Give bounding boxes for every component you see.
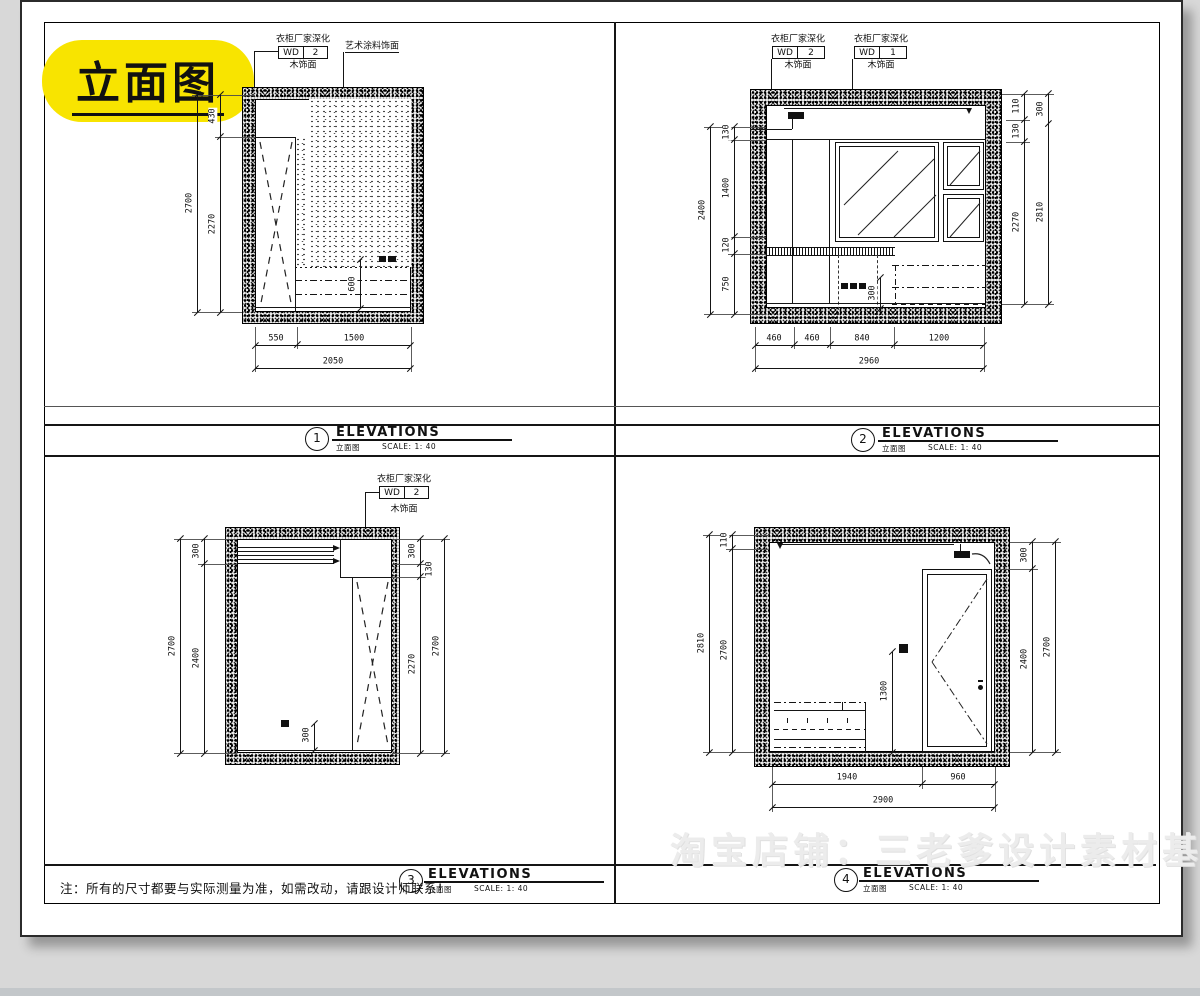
dim-label: 130 [1012,122,1021,139]
sheet-divider-horizontal [44,455,1160,457]
cabinet-line [295,267,411,268]
step-line [340,577,392,578]
leader-line [254,51,278,52]
dim-label: 1940 [836,773,858,782]
socket-icon [859,283,866,289]
titleblock-title: ELEVATIONS [882,426,986,441]
wardrobe-panel-line [829,139,830,303]
dim-line [255,368,411,369]
dim-label: 300 [1020,546,1029,563]
callout-wardrobe-title: 衣柜厂家深化 [771,32,825,45]
wall-lamp-icon [788,112,804,119]
dim-line [204,539,205,753]
step-line [340,539,341,577]
callout-num: 2 [405,487,428,498]
door-swing-dashes [923,570,993,753]
sheet-note: 注：所有的尺寸都要与实际测量为准，如需改动，请跟设计师联系！ [60,878,450,897]
glass-hatch [944,143,985,191]
dim-line [709,535,710,752]
dim-label: 840 [853,334,870,343]
callout-code: WD [279,47,304,58]
mirror-panel [835,142,939,242]
dim-label: 750 [722,275,731,292]
dim-line [220,95,221,312]
callout-wood: 木饰面 [289,58,316,71]
shoe-cabinet-line [774,702,865,703]
dim-line [1032,542,1033,752]
curtain-line [237,547,334,548]
shoe-cabinet-mark [787,718,788,723]
dim-label: 1300 [880,680,889,702]
callout-num: 1 [880,47,906,58]
ext-line [174,539,237,540]
wardrobe-edge [295,137,296,312]
dim-label: 1200 [928,334,950,343]
callout-wood: 木饰面 [867,58,894,71]
titleblock-underline [859,880,1039,882]
cabinet-line [295,294,411,295]
dim-label: 2700 [432,635,441,657]
dim-label: 460 [803,334,820,343]
callout-underline [345,52,399,53]
curtain-line [237,559,334,560]
dim-label: 300 [1036,100,1045,117]
floor-line [255,307,411,308]
shoe-cabinet-step [842,702,843,710]
socket-icon [281,720,289,727]
floor-line [766,303,986,304]
dim-label: 2700 [720,639,729,661]
desktop-background: 立面图 衣柜厂家深化 WD 2 木饰面 艺术涂料饰面 600 2700 430 … [0,0,1200,996]
badge-label: 立面图 [72,47,224,116]
dim-line [180,539,181,753]
ext-line [1006,142,1030,143]
wall-lamp-icon [954,551,970,558]
titleblock-sub: 立面图 [863,883,887,894]
titleblock-underline [878,440,1058,442]
dim-line [1055,542,1056,752]
sheet-line-1 [44,406,1160,407]
dim-label: 2270 [208,213,217,235]
callout-wardrobe-title: 衣柜厂家深化 [276,32,330,45]
dim-line [420,539,421,753]
door-panel [922,569,992,752]
titleblock-underline [424,881,604,883]
lamp-leader [781,544,954,545]
bottom-bar [0,988,1200,996]
dim-label: 430 [208,107,217,124]
elevation-badge: 立面图 [42,40,254,122]
dim-line [732,535,733,752]
titleblock-number: 2 [851,428,875,452]
titleblock-underline [332,439,512,441]
desk-line [892,287,986,288]
dim-line [710,127,711,314]
drawing-sheet: 立面图 衣柜厂家深化 WD 2 木饰面 艺术涂料饰面 600 2700 430 … [20,0,1183,937]
dim-label: 2900 [872,796,894,805]
lamp-leader [792,119,793,129]
wardrobe-panel-line [792,139,793,303]
shoe-cabinet-line [774,747,865,748]
callout-wood: 木饰面 [390,502,417,515]
titleblock-sub: 立面图 [882,443,906,454]
door-handle-icon [978,680,983,682]
glass-hatch [944,195,985,243]
curtain-arrow-icon [333,558,340,564]
dim-line [1024,94,1025,304]
shoe-cabinet-mark [827,718,828,723]
shoe-cabinet-edge [865,702,866,752]
dim-label: 1500 [343,334,365,343]
titleblock-title: ELEVATIONS [336,425,440,440]
socket-icon [850,283,857,289]
dim-label: 300 [868,284,877,301]
callout-code: WD [855,47,880,58]
dim-line [772,784,995,785]
art-paint-wall [309,99,411,267]
dim-line [1048,94,1049,304]
shoe-cabinet-mark [807,718,808,723]
dim-label: 300 [192,542,201,559]
glass-panel [943,194,984,242]
dim-label: 2960 [858,357,880,366]
desk-line [892,265,986,266]
dim-label: 2270 [408,653,417,675]
titleblock-scale: SCALE: 1: 40 [382,442,436,451]
shoe-cabinet-line [774,710,865,711]
dim-line [360,260,361,308]
callout-wardrobe-title: 衣柜厂家深化 [377,472,431,485]
ceiling-line [766,139,986,140]
sheet-line-2 [44,424,1160,426]
lamp-leader [784,108,971,109]
art-paint-wall [295,137,309,267]
switch-icon [899,644,908,653]
dim-line [755,345,984,346]
glass-hatch [836,143,940,243]
lamp-curve [970,546,992,566]
ext-line [215,137,255,138]
dim-line [772,807,995,808]
ext-line [703,535,769,536]
socket-icon [379,256,386,262]
callout-num: 2 [304,47,327,58]
shoe-cabinet-line [774,739,865,740]
ext-line [192,95,255,96]
titleblock-scale: SCALE: 1: 40 [928,443,982,452]
dim-line [734,127,735,314]
titleblock-sub: 立面图 [336,442,360,453]
ext-line [704,127,766,128]
dim-label: 2700 [1043,636,1052,658]
dim-label: 110 [720,531,729,548]
callout-wood: 木饰面 [784,58,811,71]
wardrobe-edge [352,577,353,750]
curtain-line [237,563,334,564]
callout-code: WD [773,47,798,58]
dim-label: 300 [302,726,311,743]
dim-label: 2700 [185,192,194,214]
ext-line [1006,120,1030,121]
titleblock-number: 1 [305,427,329,451]
dim-line [314,724,315,750]
callout-num: 2 [798,47,824,58]
dim-label: 550 [267,334,284,343]
sheet-divider-vertical [614,22,616,904]
dim-line [444,539,445,753]
callout-code: WD [380,487,405,498]
dim-label: 2400 [1020,648,1029,670]
callout-art-paint: 艺术涂料饰面 [345,39,399,52]
dim-label: 460 [765,334,782,343]
callout-wd-box: WD 2 [379,486,429,499]
dim-label: 2400 [698,199,707,221]
dim-label: 130 [425,560,434,577]
dim-label: 2050 [322,357,344,366]
dim-label: 2700 [168,635,177,657]
desk-line [895,265,896,305]
titleblock-scale: SCALE: 1: 40 [909,883,963,892]
curtain-arrow-icon [333,545,340,551]
dim-label: 1400 [722,177,731,199]
ext-line [255,327,256,372]
dim-label: 2810 [1036,201,1045,223]
watermark: 淘宝店铺：三老爹设计素材基地 [670,822,1200,874]
dim-label: 110 [1012,97,1021,114]
wardrobe-door-dashes [354,579,391,748]
dim-label: 130 [722,123,731,140]
dim-line [197,95,198,312]
dim-label: 600 [348,275,357,292]
wardrobe-door-dashes [257,139,295,311]
callout-wardrobe-title: 衣柜厂家深化 [854,32,908,45]
dim-label: 960 [949,773,966,782]
lamp-leader [750,129,792,130]
dim-label: 2810 [697,632,706,654]
dim-line [892,652,893,752]
dim-label: 2270 [1012,211,1021,233]
dim-label: 2400 [192,647,201,669]
dim-line [755,368,984,369]
leader-line [365,492,379,493]
socket-icon [388,256,396,262]
titleblock-scale: SCALE: 1: 40 [474,884,528,893]
ext-line [755,327,756,372]
dim-label: 120 [722,236,731,253]
ext-line [192,312,242,313]
leader-arrow-icon [966,108,972,114]
floor-line [769,752,995,753]
dim-line [255,345,411,346]
curtain-line [237,551,334,552]
dim-label: 300 [408,542,417,559]
socket-icon [841,283,848,289]
desk-line [892,304,986,305]
leader-arrow-icon [777,543,783,549]
shoe-cabinet-line [774,729,865,730]
door-handle-icon [978,685,983,690]
shoe-cabinet-mark [847,718,848,723]
curtain-line [237,555,334,556]
ext-line [922,767,923,789]
glass-panel [943,142,984,190]
